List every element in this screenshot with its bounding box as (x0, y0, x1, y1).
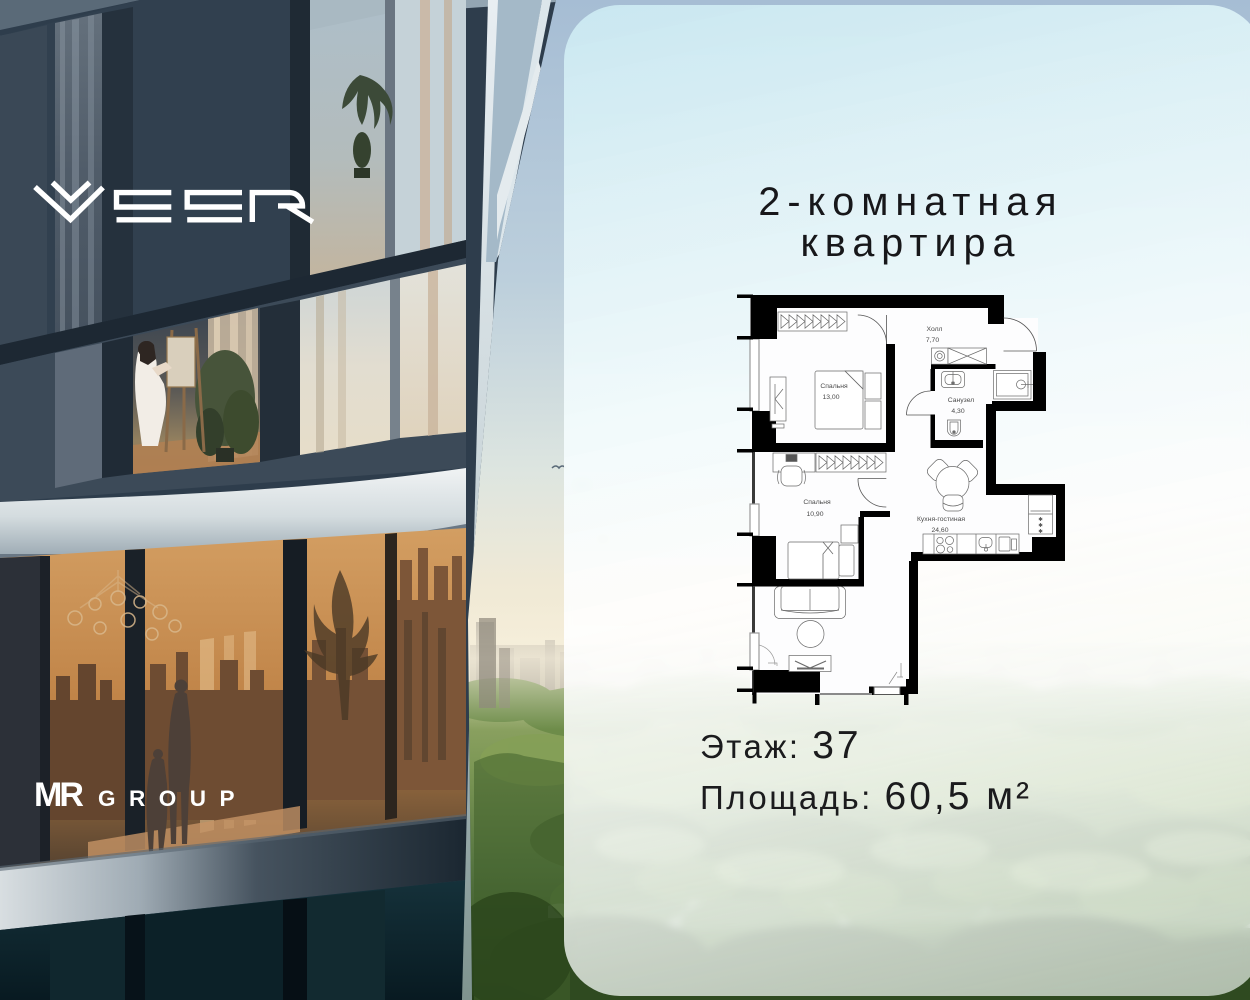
svg-text:MR: MR (34, 778, 83, 810)
svg-text:Санузел: Санузел (948, 397, 975, 404)
svg-text:13,00: 13,00 (822, 394, 839, 401)
svg-text:Кухня-гостиная: Кухня-гостиная (917, 516, 965, 523)
svg-text:✱: ✱ (1038, 522, 1043, 529)
svg-text:✱: ✱ (1038, 528, 1043, 535)
svg-text:✱: ✱ (1038, 516, 1043, 523)
svg-text:24,60: 24,60 (931, 527, 948, 534)
svg-text:Холл: Холл (926, 326, 942, 333)
svg-text:4,30: 4,30 (951, 408, 964, 415)
svg-text:10,90: 10,90 (806, 511, 823, 518)
svg-text:Спальня: Спальня (820, 383, 848, 390)
svg-text:Спальня: Спальня (803, 499, 831, 506)
svg-text:GROUP: GROUP (98, 786, 244, 810)
svg-text:7,70: 7,70 (926, 337, 939, 344)
